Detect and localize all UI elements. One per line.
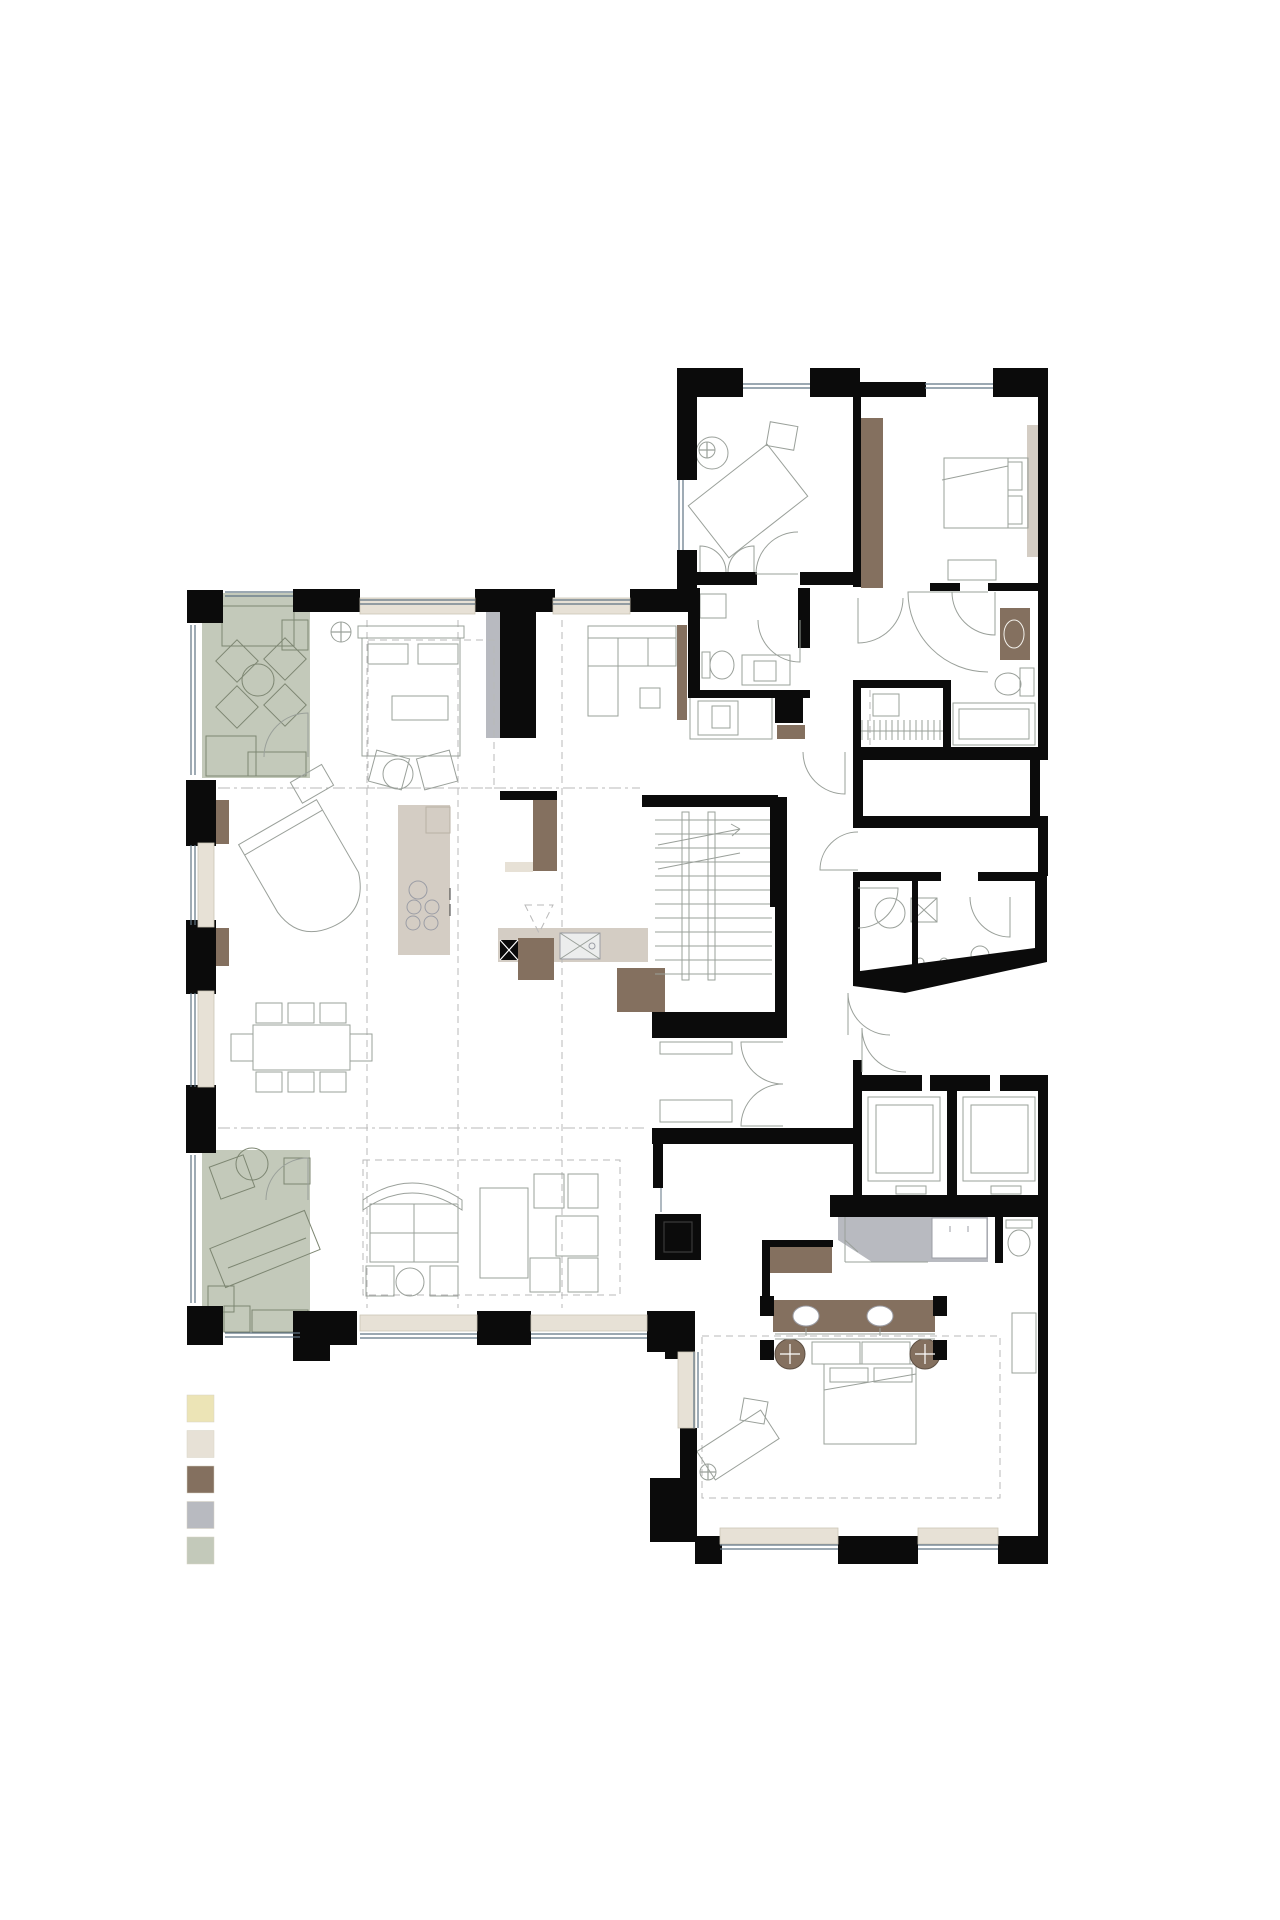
wall (838, 1536, 918, 1564)
wall (853, 397, 861, 587)
furniture-circle (396, 1268, 424, 1296)
fill-brown (677, 625, 687, 720)
furniture (708, 812, 715, 980)
fill-brown (770, 1247, 832, 1273)
furniture (1012, 1313, 1036, 1373)
door-arc (970, 897, 1010, 937)
furniture (1020, 668, 1034, 696)
furniture (682, 812, 689, 980)
furniture (868, 1097, 940, 1181)
furniture-path (942, 458, 1008, 528)
fixture (710, 651, 734, 679)
wall (1030, 758, 1040, 820)
wall (800, 572, 855, 585)
wall (853, 1060, 862, 1195)
wall (947, 1091, 957, 1195)
furniture (530, 1258, 560, 1292)
door-arc (858, 598, 903, 643)
fill-brown (617, 968, 665, 1012)
furniture-path (740, 1398, 768, 1424)
furniture (959, 709, 1029, 739)
wall (293, 1311, 357, 1345)
door-arc (728, 546, 754, 572)
wall (860, 382, 926, 397)
window-sills (198, 598, 998, 1544)
wall (988, 583, 1038, 591)
wall (642, 795, 777, 807)
wall (1038, 1195, 1048, 1545)
furniture-path (363, 1183, 462, 1210)
wall (187, 1306, 223, 1345)
wall (853, 680, 861, 747)
furniture (944, 458, 1028, 528)
furniture (754, 661, 776, 681)
wall (853, 816, 1040, 828)
fixture (1008, 1230, 1030, 1256)
furniture (766, 422, 798, 450)
wall (978, 872, 1047, 881)
fill-brown (861, 418, 883, 588)
wall (853, 747, 1048, 760)
furniture (350, 1034, 372, 1061)
furniture (288, 1003, 314, 1023)
wall (293, 1345, 330, 1361)
door-swings (264, 532, 1010, 1200)
wall (688, 588, 700, 693)
legend-beige (187, 1431, 214, 1458)
furniture (231, 1034, 253, 1061)
furniture (991, 1186, 1021, 1194)
furniture (288, 1072, 314, 1092)
wall (830, 1195, 1048, 1217)
furniture-path (618, 638, 648, 666)
furniture (568, 1174, 598, 1208)
wall (1035, 880, 1047, 950)
furniture (690, 697, 772, 739)
fill-taupe (1027, 425, 1039, 557)
wall (677, 368, 697, 480)
wall (760, 1340, 774, 1360)
furniture (873, 694, 899, 716)
wall (853, 758, 863, 820)
walls (186, 368, 1048, 1564)
window-sill (198, 991, 214, 1087)
wall (775, 962, 787, 1014)
window-sill (720, 1528, 838, 1544)
furniture (702, 652, 710, 678)
wall (630, 589, 690, 612)
furniture (640, 688, 660, 708)
furniture (660, 1042, 732, 1054)
furniture (256, 1003, 282, 1023)
wall (861, 680, 951, 688)
furniture (588, 666, 618, 716)
furniture (368, 644, 408, 664)
wall (760, 1296, 774, 1316)
furniture (862, 1342, 910, 1364)
wall (186, 780, 216, 846)
wall (1038, 1091, 1048, 1195)
furniture-circle (696, 437, 728, 469)
wall (697, 368, 743, 397)
wall (998, 1536, 1048, 1564)
page (0, 0, 1280, 1920)
wall (695, 1536, 722, 1564)
wall (775, 797, 787, 987)
legend-gray (187, 1502, 214, 1529)
furniture (1008, 496, 1022, 524)
wall (186, 1085, 216, 1153)
wall (695, 572, 757, 585)
furniture (700, 594, 726, 618)
wall (995, 1195, 1003, 1263)
furniture (697, 1410, 779, 1480)
fill-brown (518, 938, 554, 980)
door-arc (741, 1042, 783, 1084)
furniture (418, 644, 458, 664)
fill-brown (533, 800, 557, 871)
door-arc (908, 592, 988, 672)
door-arc (700, 546, 726, 572)
furniture-path (239, 800, 376, 948)
furniture (320, 1072, 346, 1092)
wall (930, 1075, 990, 1091)
floor-plan (0, 0, 1280, 1920)
wall (912, 880, 918, 975)
fixture (995, 673, 1021, 695)
wall (477, 1311, 531, 1345)
furniture (963, 1097, 1035, 1181)
wall (680, 1428, 697, 1478)
furniture (568, 1258, 598, 1292)
furniture (688, 444, 807, 558)
furniture (366, 1266, 394, 1296)
wall (853, 872, 941, 881)
door-arc (848, 993, 890, 1035)
wall (187, 590, 223, 623)
wall-angled (853, 948, 1047, 993)
furniture (948, 560, 996, 580)
wall (943, 680, 951, 747)
wall (1038, 397, 1048, 760)
furniture (932, 1218, 987, 1258)
wall (293, 589, 360, 612)
wall (186, 920, 216, 994)
window-sill (198, 843, 214, 927)
wall (862, 1075, 922, 1091)
wall (500, 612, 536, 738)
fixture (793, 1306, 819, 1326)
wall (775, 695, 803, 723)
furniture (812, 1342, 860, 1364)
wall (933, 1296, 947, 1316)
furniture (876, 1105, 933, 1173)
furniture (430, 1266, 458, 1296)
window-sill (360, 1315, 477, 1331)
wall (853, 880, 860, 980)
furniture (534, 1174, 564, 1208)
furniture-circle (383, 759, 413, 789)
furniture (1006, 1220, 1032, 1228)
wall (475, 589, 555, 612)
fill-sill (505, 862, 533, 872)
wall (933, 1340, 947, 1360)
furniture-circle (875, 898, 905, 928)
furniture (588, 638, 676, 666)
legend-green (187, 1537, 214, 1564)
furniture (362, 638, 460, 756)
fixture (867, 1306, 893, 1326)
fill-green (202, 1150, 310, 1332)
fill-brown (215, 928, 229, 966)
furniture (392, 696, 448, 720)
furniture (588, 626, 676, 638)
wall (652, 1012, 787, 1038)
furniture-path (370, 1204, 458, 1262)
wall (650, 1478, 697, 1542)
door-arc (803, 752, 845, 794)
rug-outline (363, 1160, 620, 1295)
furniture (480, 1188, 528, 1278)
wall (810, 368, 860, 397)
wall (677, 550, 697, 592)
furniture (320, 1003, 346, 1023)
wall (993, 368, 1048, 397)
furniture-circle (1021, 923, 1035, 937)
furniture (660, 1100, 732, 1122)
wall (500, 791, 557, 800)
window-sill (918, 1528, 998, 1544)
door-arc (756, 532, 798, 574)
legend-brown (187, 1466, 214, 1493)
door-arc (741, 1084, 783, 1126)
furniture-circle (1020, 895, 1036, 911)
furniture (830, 1368, 868, 1382)
wall (1038, 816, 1048, 876)
wall (765, 1240, 833, 1247)
fill-brown (777, 725, 805, 739)
furniture (256, 1072, 282, 1092)
furniture (971, 1105, 1028, 1173)
furniture (1008, 462, 1022, 490)
furniture (712, 706, 730, 728)
wall (930, 583, 960, 591)
wall (652, 1128, 862, 1144)
wall (762, 1240, 770, 1302)
wall (655, 1214, 701, 1260)
legend (187, 1395, 214, 1564)
door-arc (820, 832, 858, 870)
door-arc (952, 592, 995, 635)
window-sill (531, 1315, 647, 1331)
door-arc (758, 620, 800, 662)
wall (1000, 1075, 1048, 1091)
furniture (358, 626, 464, 638)
furniture (896, 1186, 926, 1194)
window-sill (678, 1352, 695, 1428)
fill-brown (215, 800, 229, 844)
wall (653, 1144, 663, 1188)
furniture (253, 1025, 350, 1070)
legend-cream (187, 1395, 214, 1422)
rug-outline (368, 640, 494, 788)
fill-taupe (398, 805, 450, 955)
